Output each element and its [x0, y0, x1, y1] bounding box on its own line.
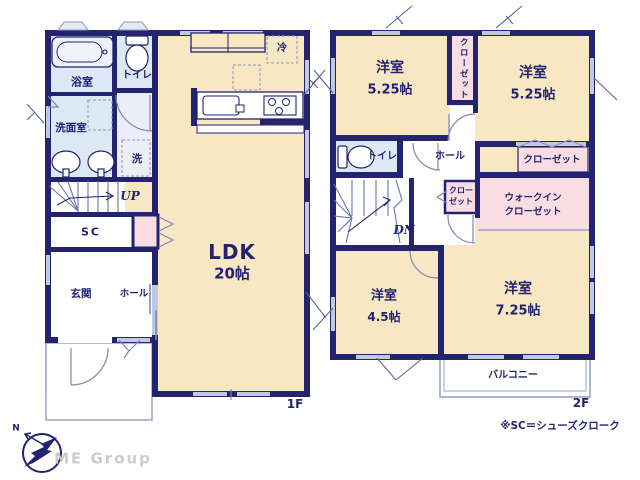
wic-line1: ウォークイン — [504, 193, 561, 203]
bedroom-ne-size: 5.25帖 — [510, 89, 555, 102]
washroom-label: 洗面室 — [55, 123, 87, 134]
balcony-label: バルコニー — [488, 371, 538, 381]
toilet-1f-label: トイレ — [122, 71, 152, 81]
floor2-label: 2F — [573, 397, 590, 409]
bathroom-label: 浴室 — [71, 77, 93, 88]
closet-ne-label: クローゼット — [523, 155, 580, 165]
closet-vertical-label: クローゼット — [459, 38, 468, 101]
hall-1f-label: ホール — [120, 289, 149, 299]
bedroom-sw-name: 洋室 — [371, 290, 397, 303]
closet-small-line2: ゼット — [449, 198, 473, 206]
toilet-2f-label: トイレ — [367, 152, 397, 162]
laundry-label: 洗 — [132, 154, 143, 165]
stairs-up-label: UP — [120, 190, 140, 202]
floorplan-canvas: 浴室 トイレ 洗面室 洗 冷 UP SC 玄関 ホール LDK 20帖 1F 洋… — [0, 0, 640, 480]
vent-icons — [58, 22, 148, 30]
wic-line2: クローゼット — [504, 207, 561, 217]
hall-2f-label: ホール — [435, 152, 465, 162]
floor1-label: 1F — [287, 398, 304, 410]
refrigerator-label: 冷 — [277, 44, 287, 54]
bedroom-nw-size: 5.25帖 — [367, 84, 412, 97]
brand-logo-text: ME Group — [54, 452, 152, 467]
sc-note: ※SC＝シューズクローク — [500, 421, 619, 432]
bathtub-icon — [52, 37, 113, 67]
bedroom-se-name: 洋室 — [504, 282, 532, 296]
bedroom-nw-name: 洋室 — [376, 61, 404, 75]
shoe-cloak-closet — [133, 215, 158, 248]
ldk-size-label: 20帖 — [214, 267, 250, 282]
toilet-icon-1f — [126, 36, 148, 71]
bedroom-ne-name: 洋室 — [519, 66, 547, 80]
entrance-label: 玄関 — [71, 289, 92, 300]
bedroom-se-size: 7.25帖 — [495, 305, 540, 318]
closet-small-line1: クロー — [449, 187, 473, 195]
ldk-name-label: LDK — [208, 242, 256, 262]
compass-north-label: N — [12, 425, 20, 434]
stairs-down-label: DN — [393, 224, 414, 236]
shoe-cloak-label: SC — [81, 227, 101, 238]
bedroom-sw-size: 4.5帖 — [367, 311, 400, 323]
entrance-porch — [46, 343, 152, 420]
